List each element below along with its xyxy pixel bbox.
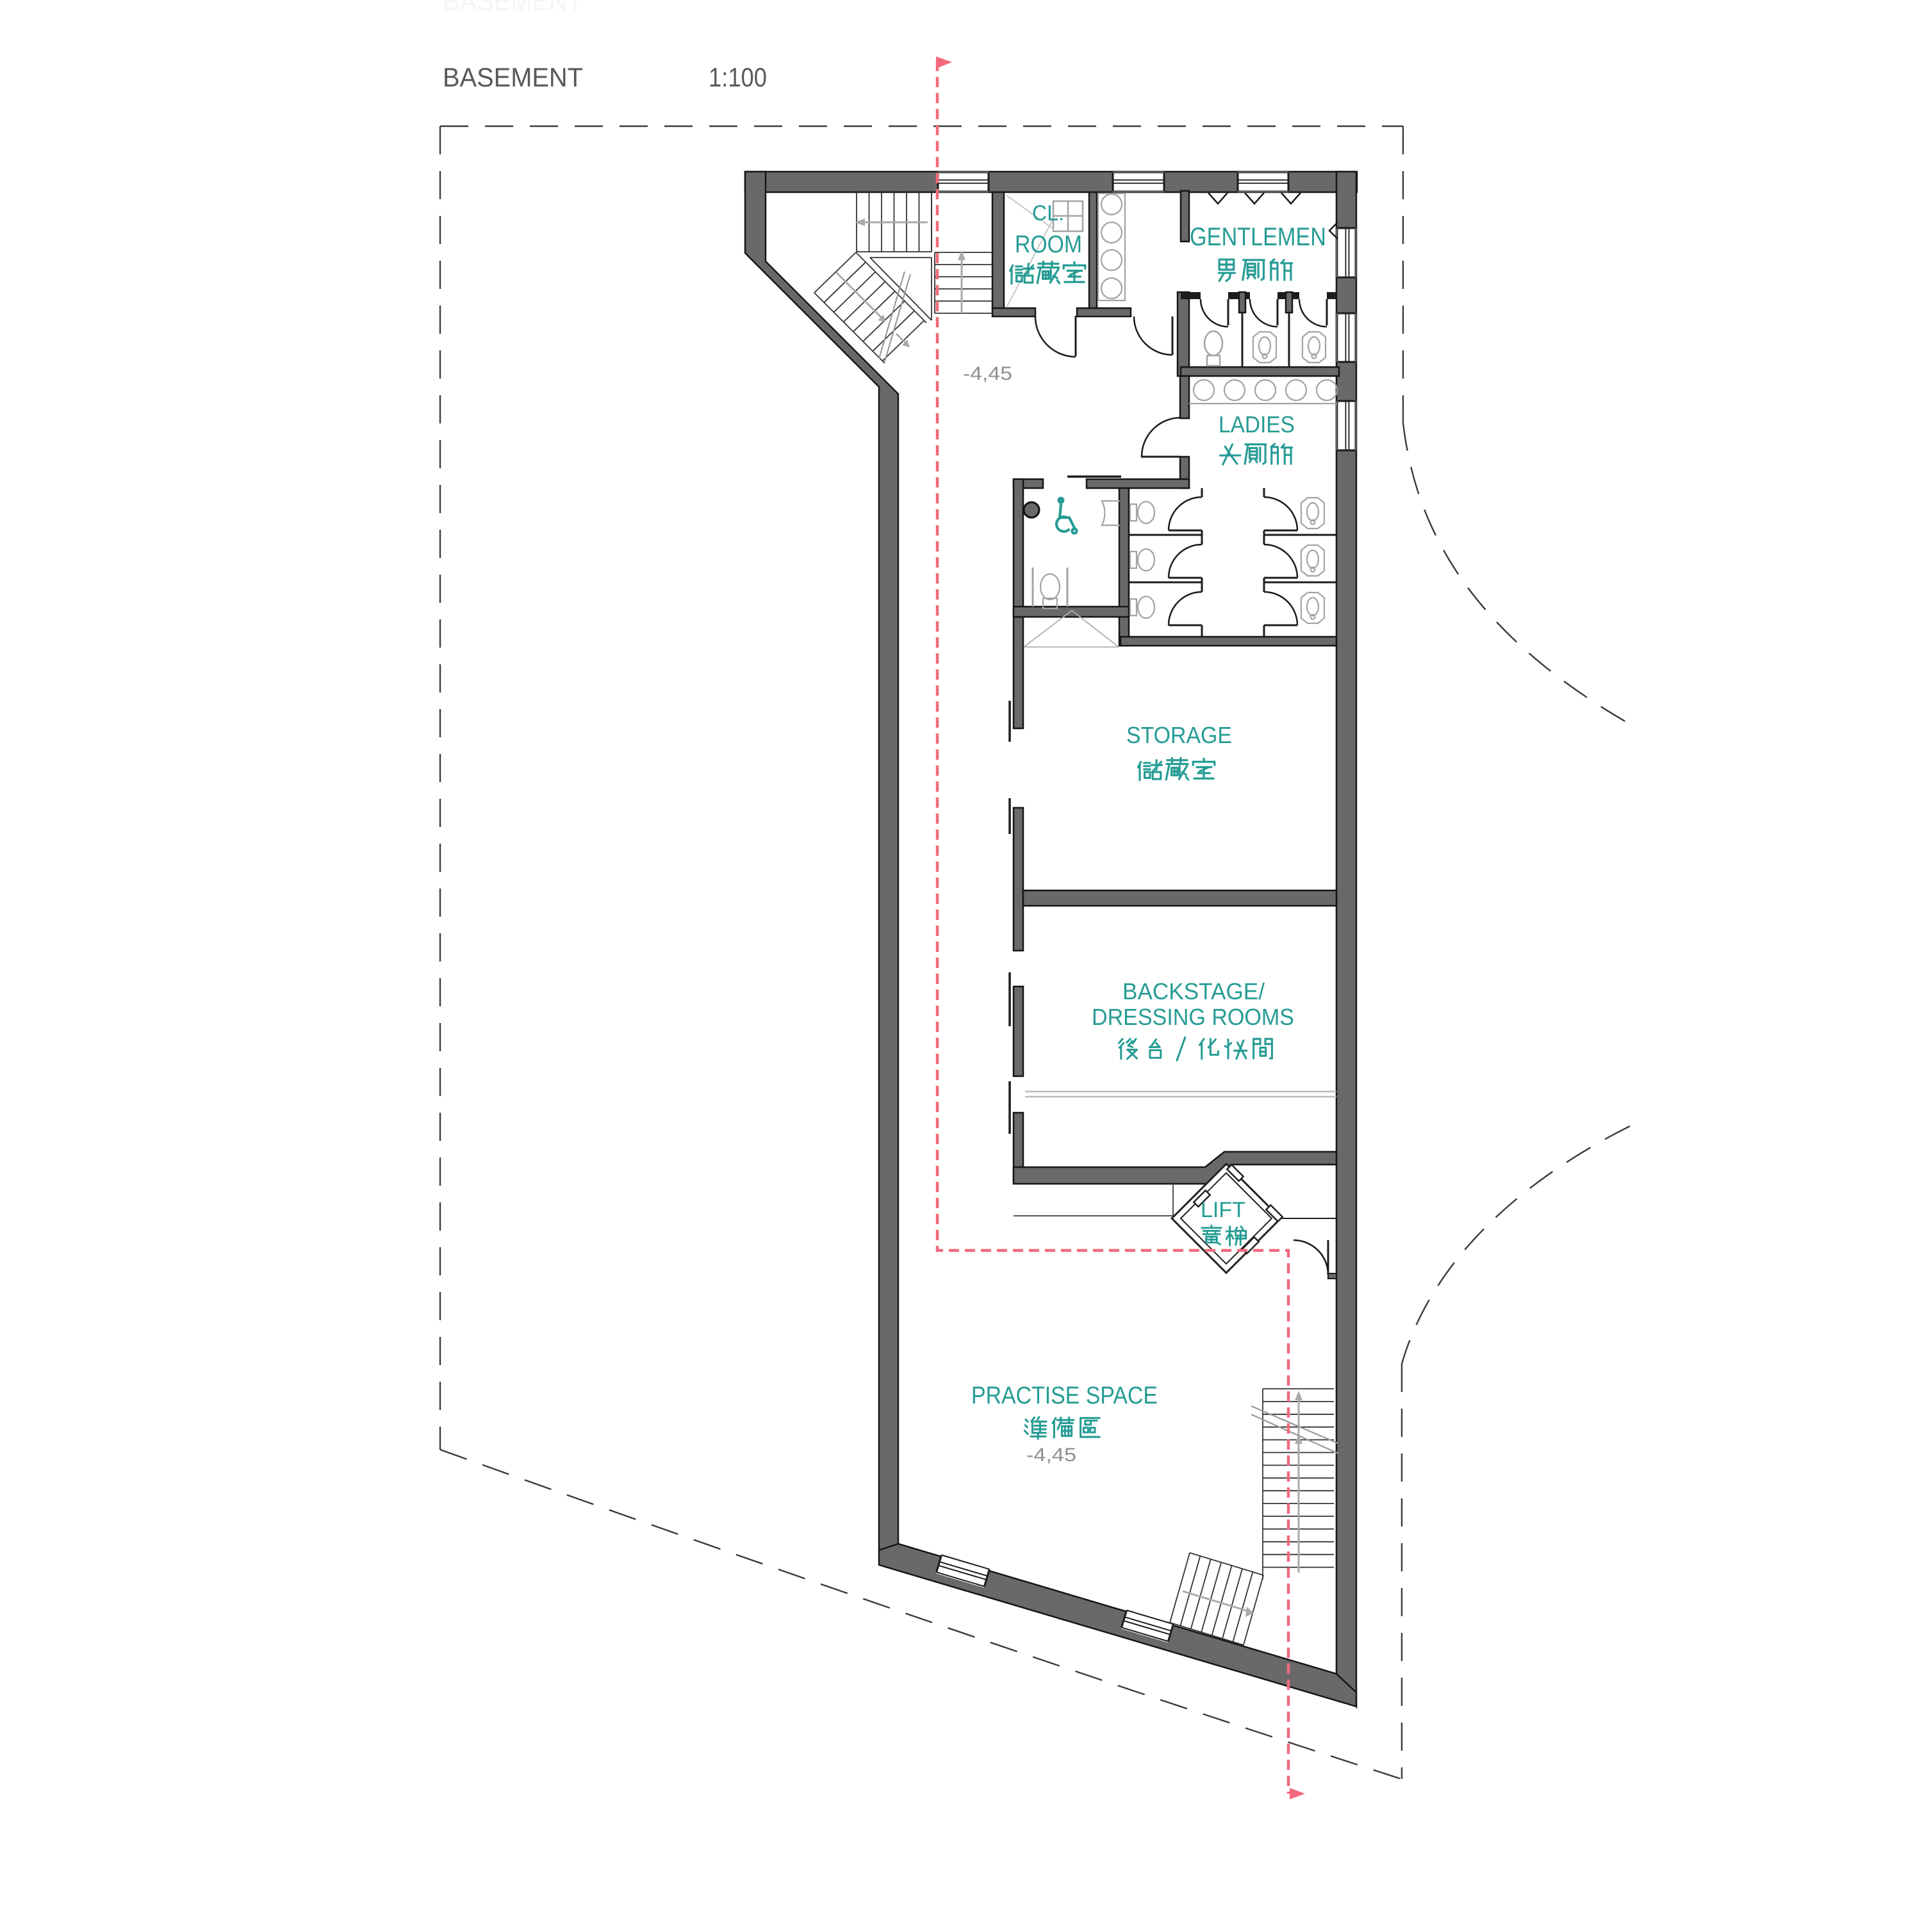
svg-text:BASEMENT: BASEMENT [443,0,583,16]
svg-text:LADIES: LADIES [1219,411,1295,438]
svg-text:-4,45: -4,45 [1026,1445,1076,1466]
svg-text:BACKSTAGE/: BACKSTAGE/ [1122,978,1265,1004]
svg-text:STORAGE: STORAGE [1126,722,1232,748]
svg-text:ROOM: ROOM [1015,231,1082,258]
svg-text:DRESSING ROOMS: DRESSING ROOMS [1092,1004,1294,1030]
svg-text:GENTLEMEN: GENTLEMEN [1190,223,1326,251]
svg-text:BASEMENT: BASEMENT [443,62,583,92]
svg-text:-4,45: -4,45 [963,363,1012,384]
svg-text:1:100: 1:100 [709,62,767,92]
svg-text:CL.: CL. [1032,201,1064,225]
svg-text:LIFT: LIFT [1201,1198,1245,1222]
svg-text:PRACTISE SPACE: PRACTISE SPACE [971,1382,1158,1409]
